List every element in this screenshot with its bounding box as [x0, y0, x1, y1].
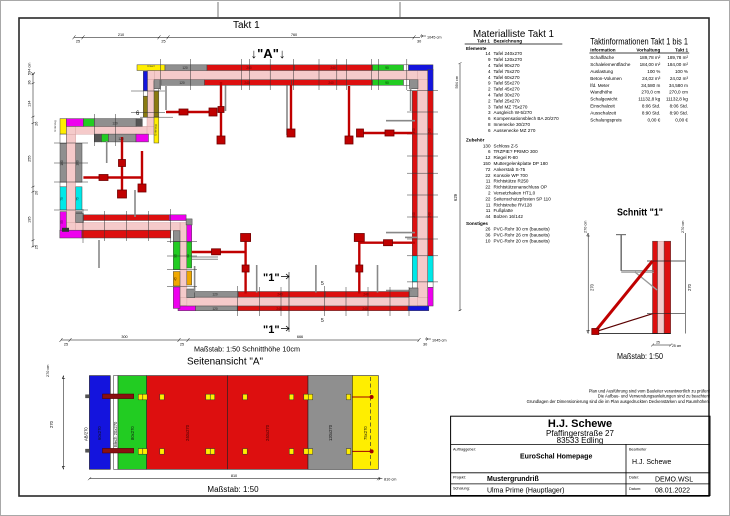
svg-text:2: 2 — [488, 87, 491, 92]
svg-text:300: 300 — [121, 335, 127, 339]
svg-text:72: 72 — [485, 167, 491, 172]
svg-text:26: 26 — [35, 122, 39, 126]
svg-text:120: 120 — [179, 81, 185, 85]
svg-text:180: 180 — [76, 160, 80, 166]
svg-text:Auftraggeber:: Auftraggeber: — [453, 448, 476, 452]
svg-text:1045 cm: 1045 cm — [432, 339, 447, 343]
svg-text:5: 5 — [321, 281, 324, 287]
svg-text:90: 90 — [385, 81, 389, 85]
svg-text:0,00 €: 0,00 € — [675, 117, 688, 122]
svg-text:180: 180 — [60, 160, 64, 166]
svg-text:90: 90 — [174, 254, 178, 258]
svg-text:270 cm: 270 cm — [584, 221, 588, 233]
svg-text:Riegel R-80: Riegel R-80 — [494, 155, 519, 160]
svg-text:195: 195 — [28, 217, 32, 223]
svg-text:240: 240 — [412, 212, 416, 218]
svg-text:Versetzhaken HT1,0: Versetzhaken HT1,0 — [494, 191, 536, 196]
svg-text:25: 25 — [656, 341, 660, 345]
svg-text:8: 8 — [488, 122, 491, 127]
svg-text:810 cm: 810 cm — [384, 478, 396, 482]
svg-text:45: 45 — [174, 277, 178, 281]
svg-text:30: 30 — [423, 343, 427, 347]
svg-text:PVC-Rohr 20 cm (bauseits): PVC-Rohr 20 cm (bauseits) — [494, 238, 551, 243]
svg-text:25: 25 — [64, 343, 68, 347]
svg-text:Wandhöhe: Wandhöhe — [590, 90, 612, 95]
svg-text:4: 4 — [488, 63, 491, 68]
svg-text:666: 666 — [297, 335, 303, 339]
svg-text:Richtstützenanschluss OP: Richtstützenanschluss OP — [494, 185, 548, 190]
svg-text:25: 25 — [35, 245, 39, 249]
svg-text:189,78 m²: 189,78 m² — [667, 55, 688, 60]
svg-text:22: 22 — [485, 173, 491, 178]
svg-text:810: 810 — [231, 474, 237, 478]
svg-text:Seitenschutzpfosten SP 110: Seitenschutzpfosten SP 110 — [494, 196, 552, 201]
svg-text:Takt 1: Takt 1 — [233, 20, 260, 31]
svg-text:Tafel 240x270: Tafel 240x270 — [494, 51, 523, 56]
svg-text:240: 240 — [244, 81, 250, 85]
svg-text:Projekt:: Projekt: — [453, 476, 466, 480]
svg-text:Konsole WP 700: Konsole WP 700 — [494, 173, 529, 178]
svg-text:6: 6 — [488, 116, 491, 121]
svg-text:AB/270: AB/270 — [84, 427, 89, 441]
svg-text:240: 240 — [277, 293, 283, 297]
svg-text:Tafel 60x270: Tafel 60x270 — [494, 75, 520, 80]
svg-text:Bezeichnung: Bezeichnung — [494, 39, 523, 44]
svg-text:240: 240 — [276, 307, 282, 311]
svg-text:80x270: 80x270 — [130, 426, 135, 440]
svg-text:Fußplatte: Fußplatte — [494, 208, 514, 213]
svg-text:Aussenecke MZ 270: Aussenecke MZ 270 — [494, 128, 536, 133]
svg-text:10: 10 — [485, 238, 491, 243]
svg-text:25: 25 — [76, 40, 80, 44]
svg-text:DEMO.WSL: DEMO.WSL — [655, 477, 693, 484]
svg-text:Schalelementfläche: Schalelementfläche — [590, 62, 631, 67]
svg-text:Seitenansicht "A": Seitenansicht "A" — [187, 356, 263, 368]
svg-text:Beton-Volumen: Beton-Volumen — [590, 76, 622, 81]
svg-text:189,78 m²: 189,78 m² — [640, 55, 661, 60]
svg-text:0,00 €: 0,00 € — [648, 117, 661, 122]
svg-text:Takt 1: Takt 1 — [477, 39, 490, 44]
svg-text:Tafel 25x270: Tafel 25x270 — [494, 98, 520, 103]
svg-text:24,02 m³: 24,02 m³ — [642, 76, 661, 81]
svg-text:55: 55 — [60, 220, 64, 224]
svg-text:240: 240 — [246, 66, 252, 70]
svg-text:Ankerstab S-75: Ankerstab S-75 — [494, 167, 526, 172]
svg-text:08.01.2022: 08.01.2022 — [655, 488, 690, 495]
svg-text:34,580 m: 34,580 m — [641, 83, 660, 88]
svg-text:Maßstab: 1:50: Maßstab: 1:50 — [207, 485, 259, 494]
svg-text:130: 130 — [483, 143, 491, 148]
svg-text:Unterzug: Unterzug — [53, 120, 57, 132]
svg-text:Schalung:: Schalung: — [453, 487, 470, 491]
svg-text:Grundlagen der Dimensionierung: Grundlagen der Dimensionierung sind die … — [527, 399, 710, 404]
svg-text:Tafel 55x270: Tafel 55x270 — [494, 81, 520, 86]
svg-text:Maßstab: 1:50: Maßstab: 1:50 — [617, 352, 663, 361]
svg-text:22: 22 — [485, 196, 491, 201]
svg-text:Einschalzeit: Einschalzeit — [590, 104, 615, 109]
svg-text:Kompensationsblech BA 20/270: Kompensationsblech BA 20/270 — [494, 116, 560, 121]
svg-text:240: 240 — [428, 212, 432, 218]
svg-text:Takt 1: Takt 1 — [675, 47, 688, 52]
svg-text:Tafel 120x270: Tafel 120x270 — [494, 57, 523, 62]
svg-text:H.J. Schewe: H.J. Schewe — [632, 459, 671, 466]
svg-text:↓"A"↓: ↓"A"↓ — [251, 46, 286, 61]
svg-text:Unterzug: Unterzug — [154, 124, 158, 136]
svg-text:255: 255 — [28, 156, 32, 162]
svg-text:100 %: 100 % — [647, 69, 660, 74]
svg-text:20: 20 — [35, 191, 39, 195]
svg-text:270,0 cm: 270,0 cm — [641, 90, 660, 95]
svg-text:184,00 m²: 184,00 m² — [667, 62, 688, 67]
svg-text:75x270: 75x270 — [363, 426, 368, 440]
svg-text:150: 150 — [483, 161, 491, 166]
svg-text:3: 3 — [488, 110, 491, 115]
svg-text:90: 90 — [385, 66, 389, 70]
svg-text:3: 3 — [488, 104, 491, 109]
svg-text:Schloss Z-5: Schloss Z-5 — [494, 143, 519, 148]
svg-text:6: 6 — [488, 128, 491, 133]
svg-text:2: 2 — [488, 191, 491, 196]
svg-text:EuroSchal Homepage: EuroSchal Homepage — [520, 454, 592, 461]
svg-text:25 cm: 25 cm — [672, 344, 681, 348]
svg-text:594 cm: 594 cm — [28, 63, 32, 75]
svg-text:11: 11 — [486, 202, 491, 207]
svg-text:Blech 20x270: Blech 20x270 — [113, 421, 118, 447]
svg-text:36: 36 — [485, 233, 491, 238]
svg-text:22: 22 — [485, 185, 491, 190]
svg-text:8:90 Std.: 8:90 Std. — [670, 110, 688, 115]
svg-text:210: 210 — [118, 33, 124, 37]
svg-text:TRZPIE? PRIMO 300: TRZPIE? PRIMO 300 — [494, 149, 539, 154]
svg-text:4: 4 — [488, 93, 491, 98]
svg-text:100 %: 100 % — [675, 69, 688, 74]
svg-text:Mustergrundriß: Mustergrundriß — [487, 476, 539, 483]
svg-text:270 cm: 270 cm — [46, 365, 50, 377]
svg-text:12: 12 — [485, 155, 491, 160]
svg-text:8:90 Std.: 8:90 Std. — [642, 110, 660, 115]
svg-text:Muttergelenkplatte DP 180: Muttergelenkplatte DP 180 — [494, 161, 549, 166]
svg-text:90: 90 — [186, 254, 190, 258]
svg-text:240: 240 — [363, 293, 369, 297]
svg-text:Datum:: Datum: — [629, 487, 641, 491]
svg-text:75: 75 — [76, 197, 80, 201]
svg-text:Bearbeiter: Bearbeiter — [629, 448, 647, 452]
svg-text:83533 Edling: 83533 Edling — [557, 436, 604, 445]
svg-text:Sonstiges: Sonstiges — [466, 221, 488, 226]
svg-text:240x270: 240x270 — [265, 424, 270, 441]
svg-text:Bolzen 16/142: Bolzen 16/142 — [494, 214, 524, 219]
svg-text:Schalfläche: Schalfläche — [590, 55, 614, 60]
svg-text:120: 120 — [212, 293, 218, 297]
svg-text:Richtstütze R250: Richtstütze R250 — [494, 179, 529, 184]
svg-text:Richtstrebe RV128: Richtstrebe RV128 — [494, 202, 533, 207]
svg-text:Tafel 30x270: Tafel 30x270 — [494, 93, 520, 98]
svg-text:36: 36 — [28, 80, 32, 84]
svg-text:270: 270 — [687, 283, 692, 291]
svg-text:Ulma Prime (Hauptlager): Ulma Prime (Hauptlager) — [487, 488, 564, 495]
svg-text:760: 760 — [291, 33, 297, 37]
svg-text:PVC-Rohr 26 cm (bauseits): PVC-Rohr 26 cm (bauseits) — [494, 233, 551, 238]
svg-text:26: 26 — [485, 227, 491, 232]
svg-text:11: 11 — [486, 179, 491, 184]
svg-text:Maßstab: 1:50 Schnitthöhe 10: Maßstab: 1:50 Schnitthöhe 10cm — [194, 345, 300, 354]
svg-text:Schalgewicht: Schalgewicht — [590, 97, 618, 102]
svg-text:240: 240 — [328, 81, 334, 85]
svg-text:34,580 m: 34,580 m — [669, 83, 688, 88]
svg-text:184,00 m²: 184,00 m² — [640, 62, 661, 67]
svg-text:11132,8 kg: 11132,8 kg — [666, 97, 688, 102]
svg-text:Information: Information — [590, 47, 615, 52]
svg-text:Ausschalzeit: Ausschalzeit — [590, 110, 617, 115]
svg-text:4: 4 — [488, 75, 491, 80]
svg-text:120: 120 — [118, 137, 124, 141]
svg-text:594 cm: 594 cm — [455, 76, 459, 88]
svg-text:270: 270 — [49, 420, 54, 428]
svg-text:25: 25 — [180, 343, 184, 347]
svg-text:Unterz: Unterz — [147, 64, 155, 68]
svg-text:240: 240 — [330, 66, 336, 70]
svg-text:2: 2 — [488, 98, 491, 103]
svg-text:1045 cm: 1045 cm — [427, 36, 442, 40]
svg-text:9: 9 — [488, 81, 491, 86]
svg-text:134: 134 — [28, 101, 32, 107]
svg-text:PVC-Rohr 30 cm (bauseits): PVC-Rohr 30 cm (bauseits) — [494, 227, 551, 232]
svg-text:Datei:: Datei: — [629, 476, 639, 480]
svg-text:11132,8 kg: 11132,8 kg — [638, 97, 660, 102]
svg-text:240: 240 — [412, 128, 416, 134]
svg-text:Vorhaltung: Vorhaltung — [636, 47, 660, 52]
svg-text:270: 270 — [590, 283, 595, 291]
svg-text:9: 9 — [488, 57, 491, 62]
svg-text:120x270: 120x270 — [328, 424, 333, 441]
svg-text:"1": "1" — [263, 272, 280, 284]
svg-text:Taktinformationen Takt 1 bis: Taktinformationen Takt 1 bis 1 — [590, 37, 688, 48]
svg-text:Schnitt "1": Schnitt "1" — [617, 207, 663, 219]
svg-text:Tafel 75x270: Tafel 75x270 — [494, 69, 520, 74]
svg-text:240x270: 240x270 — [185, 424, 190, 441]
svg-text:lfd. Meter: lfd. Meter — [590, 83, 610, 88]
svg-text:270,0 cm: 270,0 cm — [669, 90, 688, 95]
svg-text:Zubehör: Zubehör — [466, 138, 485, 143]
svg-text:Ausgleich W-5/270: Ausgleich W-5/270 — [494, 110, 533, 115]
svg-text:11: 11 — [486, 208, 491, 213]
svg-text:Tafel 90x270: Tafel 90x270 — [494, 63, 520, 68]
svg-text:44: 44 — [485, 214, 491, 219]
svg-text:Elemente: Elemente — [466, 46, 487, 51]
svg-text:120: 120 — [112, 122, 118, 126]
svg-text:5: 5 — [321, 318, 324, 324]
svg-text:Tafel MZ 75x270: Tafel MZ 75x270 — [494, 104, 528, 109]
svg-text:Schalungspreis: Schalungspreis — [590, 117, 622, 122]
svg-text:30: 30 — [417, 40, 421, 44]
svg-text:629: 629 — [453, 193, 458, 201]
svg-text:"1": "1" — [263, 324, 280, 336]
svg-text:240: 240 — [428, 128, 432, 134]
svg-text:Auslastung: Auslastung — [590, 69, 613, 74]
svg-text:120: 120 — [182, 66, 188, 70]
svg-text:240: 240 — [362, 307, 368, 311]
svg-text:24,02 m³: 24,02 m³ — [670, 76, 689, 81]
svg-text:8:06 Std.: 8:06 Std. — [670, 104, 688, 109]
svg-text:25: 25 — [161, 40, 165, 44]
svg-text:Innenecke 30/270: Innenecke 30/270 — [494, 122, 531, 127]
svg-text:Tafel 45x270: Tafel 45x270 — [494, 87, 520, 92]
svg-text:270 cm: 270 cm — [681, 221, 685, 233]
svg-text:6: 6 — [488, 149, 491, 154]
svg-text:8:06 Std.: 8:06 Std. — [642, 104, 660, 109]
svg-text:60x270: 60x270 — [97, 426, 102, 440]
svg-text:4: 4 — [488, 69, 491, 74]
svg-text:75: 75 — [60, 197, 64, 201]
svg-text:14: 14 — [485, 51, 491, 56]
svg-text:120: 120 — [212, 307, 218, 311]
